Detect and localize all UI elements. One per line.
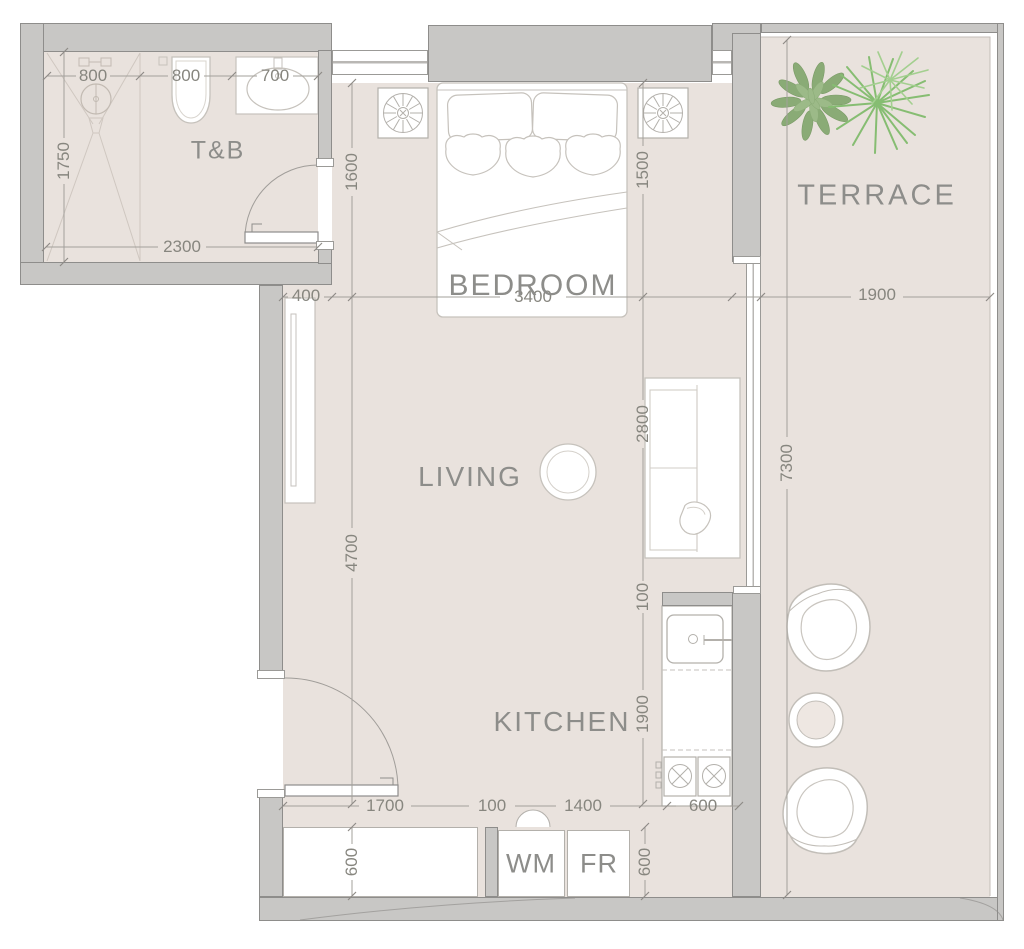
dim-tb-sink-width: 700: [261, 66, 289, 86]
dim-entry-gap: 100: [478, 796, 506, 816]
dim-living-height: 4700: [342, 534, 362, 572]
dim-bedroom-left-height: 1600: [342, 153, 362, 191]
dim-tb-toilet-width: 800: [172, 66, 200, 86]
dim-terrace-width: 1900: [858, 285, 896, 305]
room-label-living: LIVING: [418, 461, 522, 493]
floor-plan: T&B BEDROOM TERRACE LIVING KITCHEN WM FR…: [0, 0, 1024, 949]
dim-bedroom-right-height: 1500: [633, 151, 653, 189]
label-fridge: FR: [580, 849, 618, 880]
dim-kitchen-stub: 100: [633, 583, 653, 611]
dim-appliance-depth: 600: [635, 848, 655, 876]
dim-kitchen-width: 1400: [564, 796, 602, 816]
room-label-tb: T&B: [191, 137, 246, 166]
dim-kitchen-counter-depth: 600: [689, 796, 717, 816]
room-label-kitchen: KITCHEN: [494, 706, 631, 738]
dim-living-wall-offset: 400: [292, 286, 320, 306]
dim-tb-width: 2300: [163, 237, 201, 257]
room-label-bedroom: BEDROOM: [448, 269, 617, 303]
dim-tb-shower-width: 800: [79, 66, 107, 86]
dim-tb-depth: 1750: [54, 142, 74, 180]
dim-wardrobe-depth: 600: [342, 848, 362, 876]
dim-entry-width: 1700: [366, 796, 404, 816]
label-washing-machine: WM: [506, 849, 556, 880]
room-label-terrace: TERRACE: [797, 180, 957, 213]
dim-terrace-height: 7300: [777, 444, 797, 482]
dim-kitchen-counter-length: 1900: [633, 695, 653, 733]
dim-living-glass-height: 2800: [633, 405, 653, 443]
